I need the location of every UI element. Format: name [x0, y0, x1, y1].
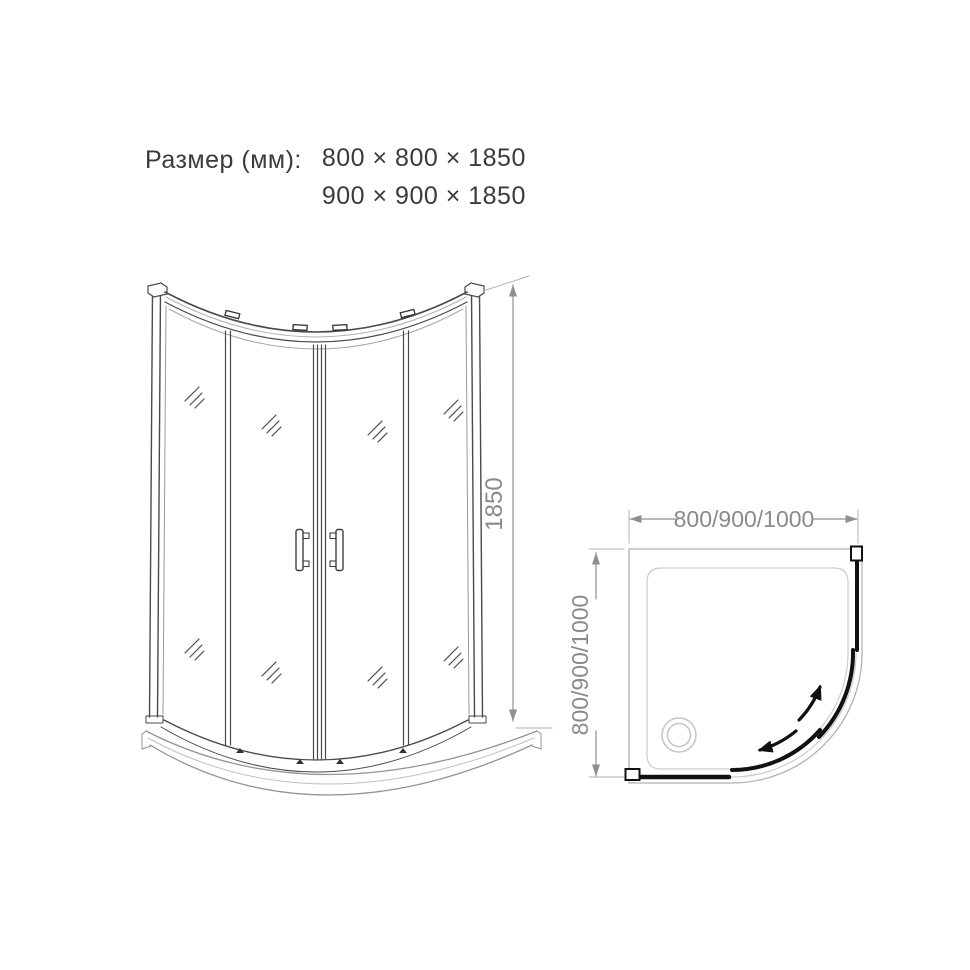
depth-dimension: 800/900/1000 — [567, 549, 624, 777]
door-handles — [296, 530, 343, 571]
glass-panel-edges — [163, 306, 469, 714]
top-rail — [165, 292, 467, 349]
right-profile-cap — [465, 283, 484, 297]
right-door-handle — [330, 530, 343, 571]
left-door-handle — [296, 530, 309, 571]
glass-reflection-marks — [185, 387, 463, 688]
extension-line — [483, 276, 529, 291]
top-right-profile-cap — [851, 547, 862, 561]
tray-inner-surface — [647, 568, 848, 769]
width-dimension-label: 800/900/1000 — [674, 506, 815, 532]
shine-icon — [368, 667, 387, 688]
technical-drawing: 1850 — [0, 0, 970, 970]
top-view: 800/900/1000 800/900/1000 — [567, 506, 862, 783]
shine-icon — [444, 400, 463, 421]
right-profile-foot — [469, 716, 486, 723]
depth-dimension-label: 800/900/1000 — [567, 595, 593, 736]
left-profile-cap — [148, 283, 167, 297]
roller-icon — [400, 309, 415, 317]
tray-right-cap — [532, 731, 541, 749]
roller-icon — [333, 325, 347, 331]
shower-enclosure-drawing-page: Размер (мм): 800 × 800 × 1850 900 × 900 … — [0, 0, 970, 970]
shine-icon — [262, 415, 281, 436]
shine-icon — [185, 387, 204, 408]
tray-left-cap — [142, 731, 151, 749]
door-stiles — [226, 331, 409, 760]
bottom-left-profile-cap — [626, 769, 640, 780]
roller-icon — [293, 325, 307, 331]
top-roller-carriages — [225, 309, 415, 330]
shine-icon — [262, 662, 281, 683]
shine-icon — [368, 421, 387, 442]
shine-icon — [444, 647, 463, 668]
front-view: 1850 — [142, 276, 552, 795]
width-dimension: 800/900/1000 — [629, 506, 858, 543]
guide-icon — [399, 748, 407, 753]
height-dimension-label: 1850 — [481, 477, 508, 530]
shine-icon — [185, 639, 204, 660]
height-dimension: 1850 — [481, 276, 552, 728]
left-profile-foot — [146, 716, 163, 723]
